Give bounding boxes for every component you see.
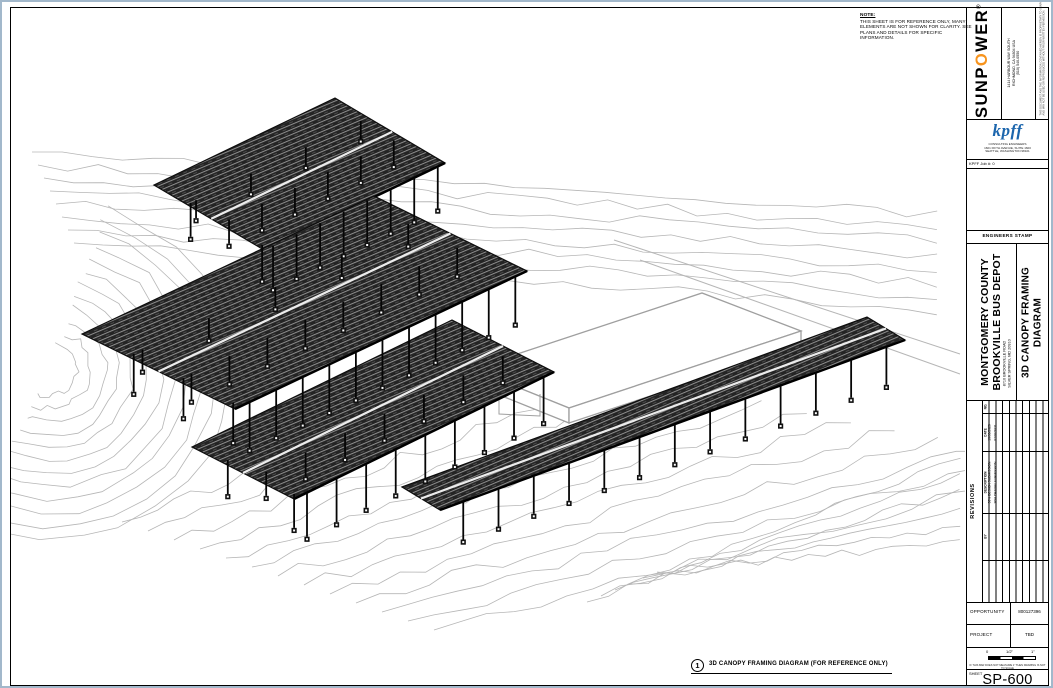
opportunity-value: 800127396	[1010, 609, 1049, 614]
revision-description: 90% DESIGN SUBMISSION	[993, 453, 998, 511]
revision-date: 07/02/2021	[993, 414, 998, 450]
revisions-col-no: NO.	[983, 396, 988, 416]
registered-mark: ®	[977, 4, 983, 8]
sunpower-logo-o-sun-icon: O	[973, 52, 991, 66]
revision-description: 30% DESIGN SUBMISSION	[987, 453, 992, 511]
reference-note: NOTE: THIS SHEET IS FOR REFERENCE ONLY, …	[860, 12, 972, 41]
divider	[982, 451, 1049, 452]
opportunity-label: OPPORTUNITY	[970, 609, 1005, 614]
sunpower-logo: SUNPOWER®	[973, 8, 993, 118]
note-line: THIS SHEET IS FOR REFERENCE ONLY, MANY	[860, 19, 966, 24]
divider	[966, 647, 1049, 648]
kpff-line: SEATTLE, WASHINGTON 98101	[985, 149, 1029, 153]
sunpower-logo-text: WER	[973, 9, 991, 52]
viewport-title: 3D CANOPY FRAMING DIAGRAM (FOR REFERENCE…	[709, 661, 888, 667]
revisions-label: REVISIONS	[970, 461, 978, 541]
scale-tick-one: 1"	[1031, 649, 1035, 654]
kpff-logo: kpff	[966, 121, 1049, 141]
address-line: RICHMOND, CA 94804 USA	[1012, 40, 1016, 86]
kpff-subtext: CONSULTING ENGINEERS 1601 FIFTH AVENUE, …	[966, 143, 1049, 154]
divider	[966, 159, 1049, 160]
divider	[966, 119, 1049, 120]
note-line: PLANS AND DETAILS FOR SPECIFIC INFORMATI…	[860, 30, 942, 41]
divider	[1010, 602, 1011, 647]
project-address: 8710 BROOKVILLE ROAD SILVER SPRING, MD 2…	[1003, 329, 1012, 399]
sunpower-address: 1414 HARBOUR WAY SOUTH RICHMOND, CA 9480…	[1007, 15, 1021, 111]
address-line: SILVER SPRING, MD 20910	[1007, 339, 1011, 387]
graphic-scale-bar	[988, 656, 1036, 660]
titleblock-divider	[966, 7, 967, 686]
sunpower-legal: THIS DOCUMENT AND THE INFORMATION CONTAI…	[1040, 11, 1047, 115]
revisions-col-by: BY	[983, 526, 988, 546]
viewport-number: 1	[695, 661, 699, 670]
divider	[1016, 243, 1017, 400]
project-value: TBD	[1010, 632, 1049, 637]
drawing-sheet: NOTE: THIS SHEET IS FOR REFERENCE ONLY, …	[0, 0, 1053, 688]
address-line: (510) 540-0550	[1016, 51, 1020, 76]
sheet-title-line: 3D CANOPY FRAMING	[1021, 267, 1032, 378]
note-heading: NOTE:	[860, 13, 875, 18]
kpff-job-number: KPFF Job #: 0	[969, 161, 995, 166]
client-line: BROOKVILLE BUS DEPOT	[991, 254, 1003, 391]
project-label: PROJECT	[970, 632, 992, 637]
scale-tick-half: 1/2"	[1006, 649, 1013, 654]
divider	[966, 624, 1049, 625]
sunpower-logo-text: SUNP	[973, 66, 991, 118]
divider	[966, 602, 1049, 603]
divider	[966, 243, 1049, 244]
engineers-stamp-label: ENGINEERS STAMP	[966, 233, 1049, 238]
divider	[982, 513, 1049, 514]
note-line: ELEMENTS ARE NOT SHOWN FOR CLARITY. SEE	[860, 24, 972, 29]
project-client-name: MONTGOMERY COUNTY BROOKVILLE BUS DEPOT	[979, 247, 1003, 397]
sheet-title: 3D CANOPY FRAMING DIAGRAM	[1021, 247, 1044, 397]
divider	[1001, 7, 1002, 119]
revision-date: 10/30/2020	[987, 414, 992, 450]
legal-line: AND MAY NOT BE USED OR REPRODUCED WITHOU…	[1043, 9, 1046, 115]
divider	[1035, 7, 1036, 119]
sheet-number: SP-600	[966, 672, 1049, 688]
address-line: 1414 HARBOUR WAY SOUTH	[1007, 38, 1011, 87]
divider	[982, 560, 1049, 561]
client-line: MONTGOMERY COUNTY	[979, 258, 991, 386]
scale-tick-0: 0	[986, 649, 988, 654]
viewport-number-bubble: 1	[691, 659, 704, 672]
divider	[966, 230, 1049, 231]
sheet-title-line: DIAGRAM	[1032, 297, 1043, 346]
sheet-border	[10, 7, 1049, 686]
viewport-underline	[691, 673, 892, 674]
address-line: 8710 BROOKVILLE ROAD	[1003, 341, 1007, 387]
divider	[966, 168, 1049, 169]
